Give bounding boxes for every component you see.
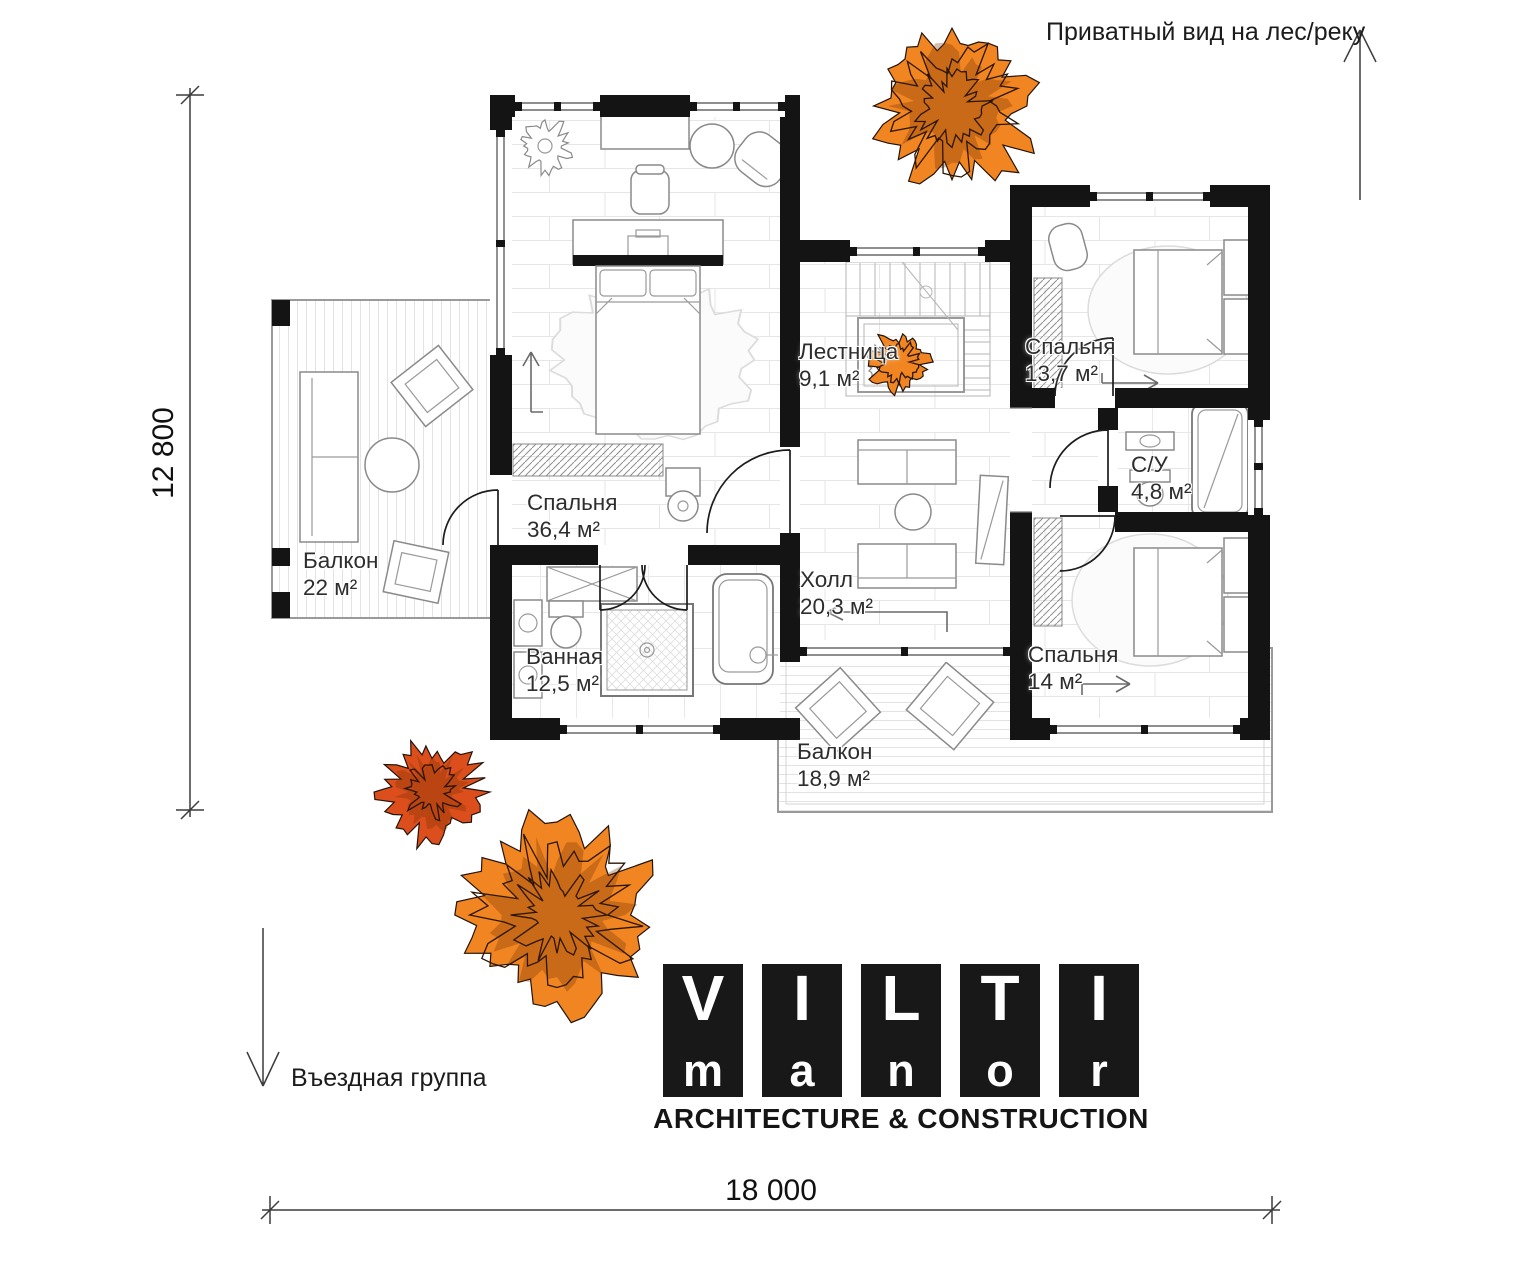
room-name: Спальня: [1025, 333, 1115, 360]
desk-chair: [631, 165, 669, 214]
room-name: Лестница: [799, 338, 898, 365]
logo-letter: T: [960, 962, 1040, 1034]
toilet: [549, 601, 583, 648]
dimension-height: 12 800: [147, 403, 179, 503]
logo-tagline: ARCHITECTURE & CONSTRUCTION: [653, 1103, 1149, 1135]
room-label-bedroom-3: Спальня 14 м²: [1028, 641, 1118, 695]
room-area: 18,9 м²: [797, 765, 872, 792]
tree-icon-bottom: [455, 810, 653, 1023]
logo-letter: o: [960, 1047, 1040, 1095]
view-direction-arrow: [1344, 30, 1376, 200]
room-area: 12,5 м²: [526, 670, 603, 697]
logo-tile-3: L n: [861, 964, 941, 1097]
wc-sink: [1126, 432, 1174, 450]
room-label-hall: Холл 20,3 м²: [800, 566, 873, 620]
bed-master: [573, 255, 723, 434]
room-name: Ванная: [526, 643, 603, 670]
room-area: 13,7 м²: [1025, 360, 1115, 387]
logo-letter: I: [1059, 962, 1139, 1034]
shower: [601, 604, 693, 696]
washbasin-1: [514, 600, 542, 646]
logo: V m I a L n T o I r: [663, 964, 1139, 1097]
room-name: Балкон: [797, 738, 872, 765]
room-area: 20,3 м²: [800, 593, 873, 620]
room-name: Холл: [800, 566, 873, 593]
wardrobe-2: [1034, 518, 1062, 626]
balcony-round-table: [365, 438, 419, 492]
cart: [666, 468, 700, 521]
console-table: [601, 115, 689, 149]
logo-letter: n: [861, 1047, 941, 1095]
dimension-width: 18 000: [725, 1174, 817, 1208]
logo-letter: L: [861, 962, 941, 1034]
bed-3: [1134, 538, 1250, 656]
floor-plan-page: Спальня 36,4 м² Лестница 9,1 м² Спальня …: [0, 0, 1524, 1274]
room-name: Балкон: [303, 547, 378, 574]
logo-letter: r: [1059, 1047, 1139, 1095]
view-note: Приватный вид на лес/реку: [1046, 18, 1365, 47]
room-label-bedroom-master: Спальня 36,4 м²: [527, 489, 617, 543]
tree-icon-small-red: [374, 741, 490, 849]
coffee-table: [895, 494, 931, 530]
logo-tile-2: I a: [762, 964, 842, 1097]
tree-icon-top: [873, 28, 1040, 184]
room-area: 4,8 м²: [1131, 478, 1192, 505]
leaning-mirror: [976, 475, 1009, 564]
dimension-line-vertical: [176, 86, 204, 819]
room-label-wc: С/У 4,8 м²: [1131, 451, 1192, 505]
cabinet-crossed: [547, 567, 637, 601]
room-name: Спальня: [1028, 641, 1118, 668]
room-area: 14 м²: [1028, 668, 1118, 695]
room-label-bedroom-2: Спальня 13,7 м²: [1025, 333, 1115, 387]
room-area: 36,4 м²: [527, 516, 617, 543]
logo-letter: m: [663, 1047, 743, 1095]
bathtub: [713, 574, 778, 684]
logo-letter: V: [663, 962, 743, 1034]
balcony-sofa: [300, 372, 358, 542]
shower-column: [1192, 404, 1248, 518]
balcony-armchair-2: [383, 541, 449, 604]
logo-letter: a: [762, 1047, 842, 1095]
room-area: 22 м²: [303, 574, 378, 601]
radiator: [513, 444, 663, 476]
logo-tile-1: V m: [663, 964, 743, 1097]
room-label-balcony-bottom: Балкон 18,9 м²: [797, 738, 872, 792]
room-label-bathroom: Ванная 12,5 м²: [526, 643, 603, 697]
room-area: 9,1 м²: [799, 365, 898, 392]
room-name: Спальня: [527, 489, 617, 516]
logo-tile-4: T o: [960, 964, 1040, 1097]
room-label-stairs: Лестница 9,1 м²: [799, 338, 898, 392]
logo-tile-5: I r: [1059, 964, 1139, 1097]
room-name: С/У: [1131, 451, 1192, 478]
sofa-1: [858, 440, 956, 484]
logo-letter: I: [762, 962, 842, 1034]
entrance-arrow: [247, 928, 279, 1086]
side-table: [690, 124, 734, 168]
room-label-balcony-left: Балкон 22 м²: [303, 547, 378, 601]
entrance-note: Въездная группа: [291, 1064, 487, 1093]
